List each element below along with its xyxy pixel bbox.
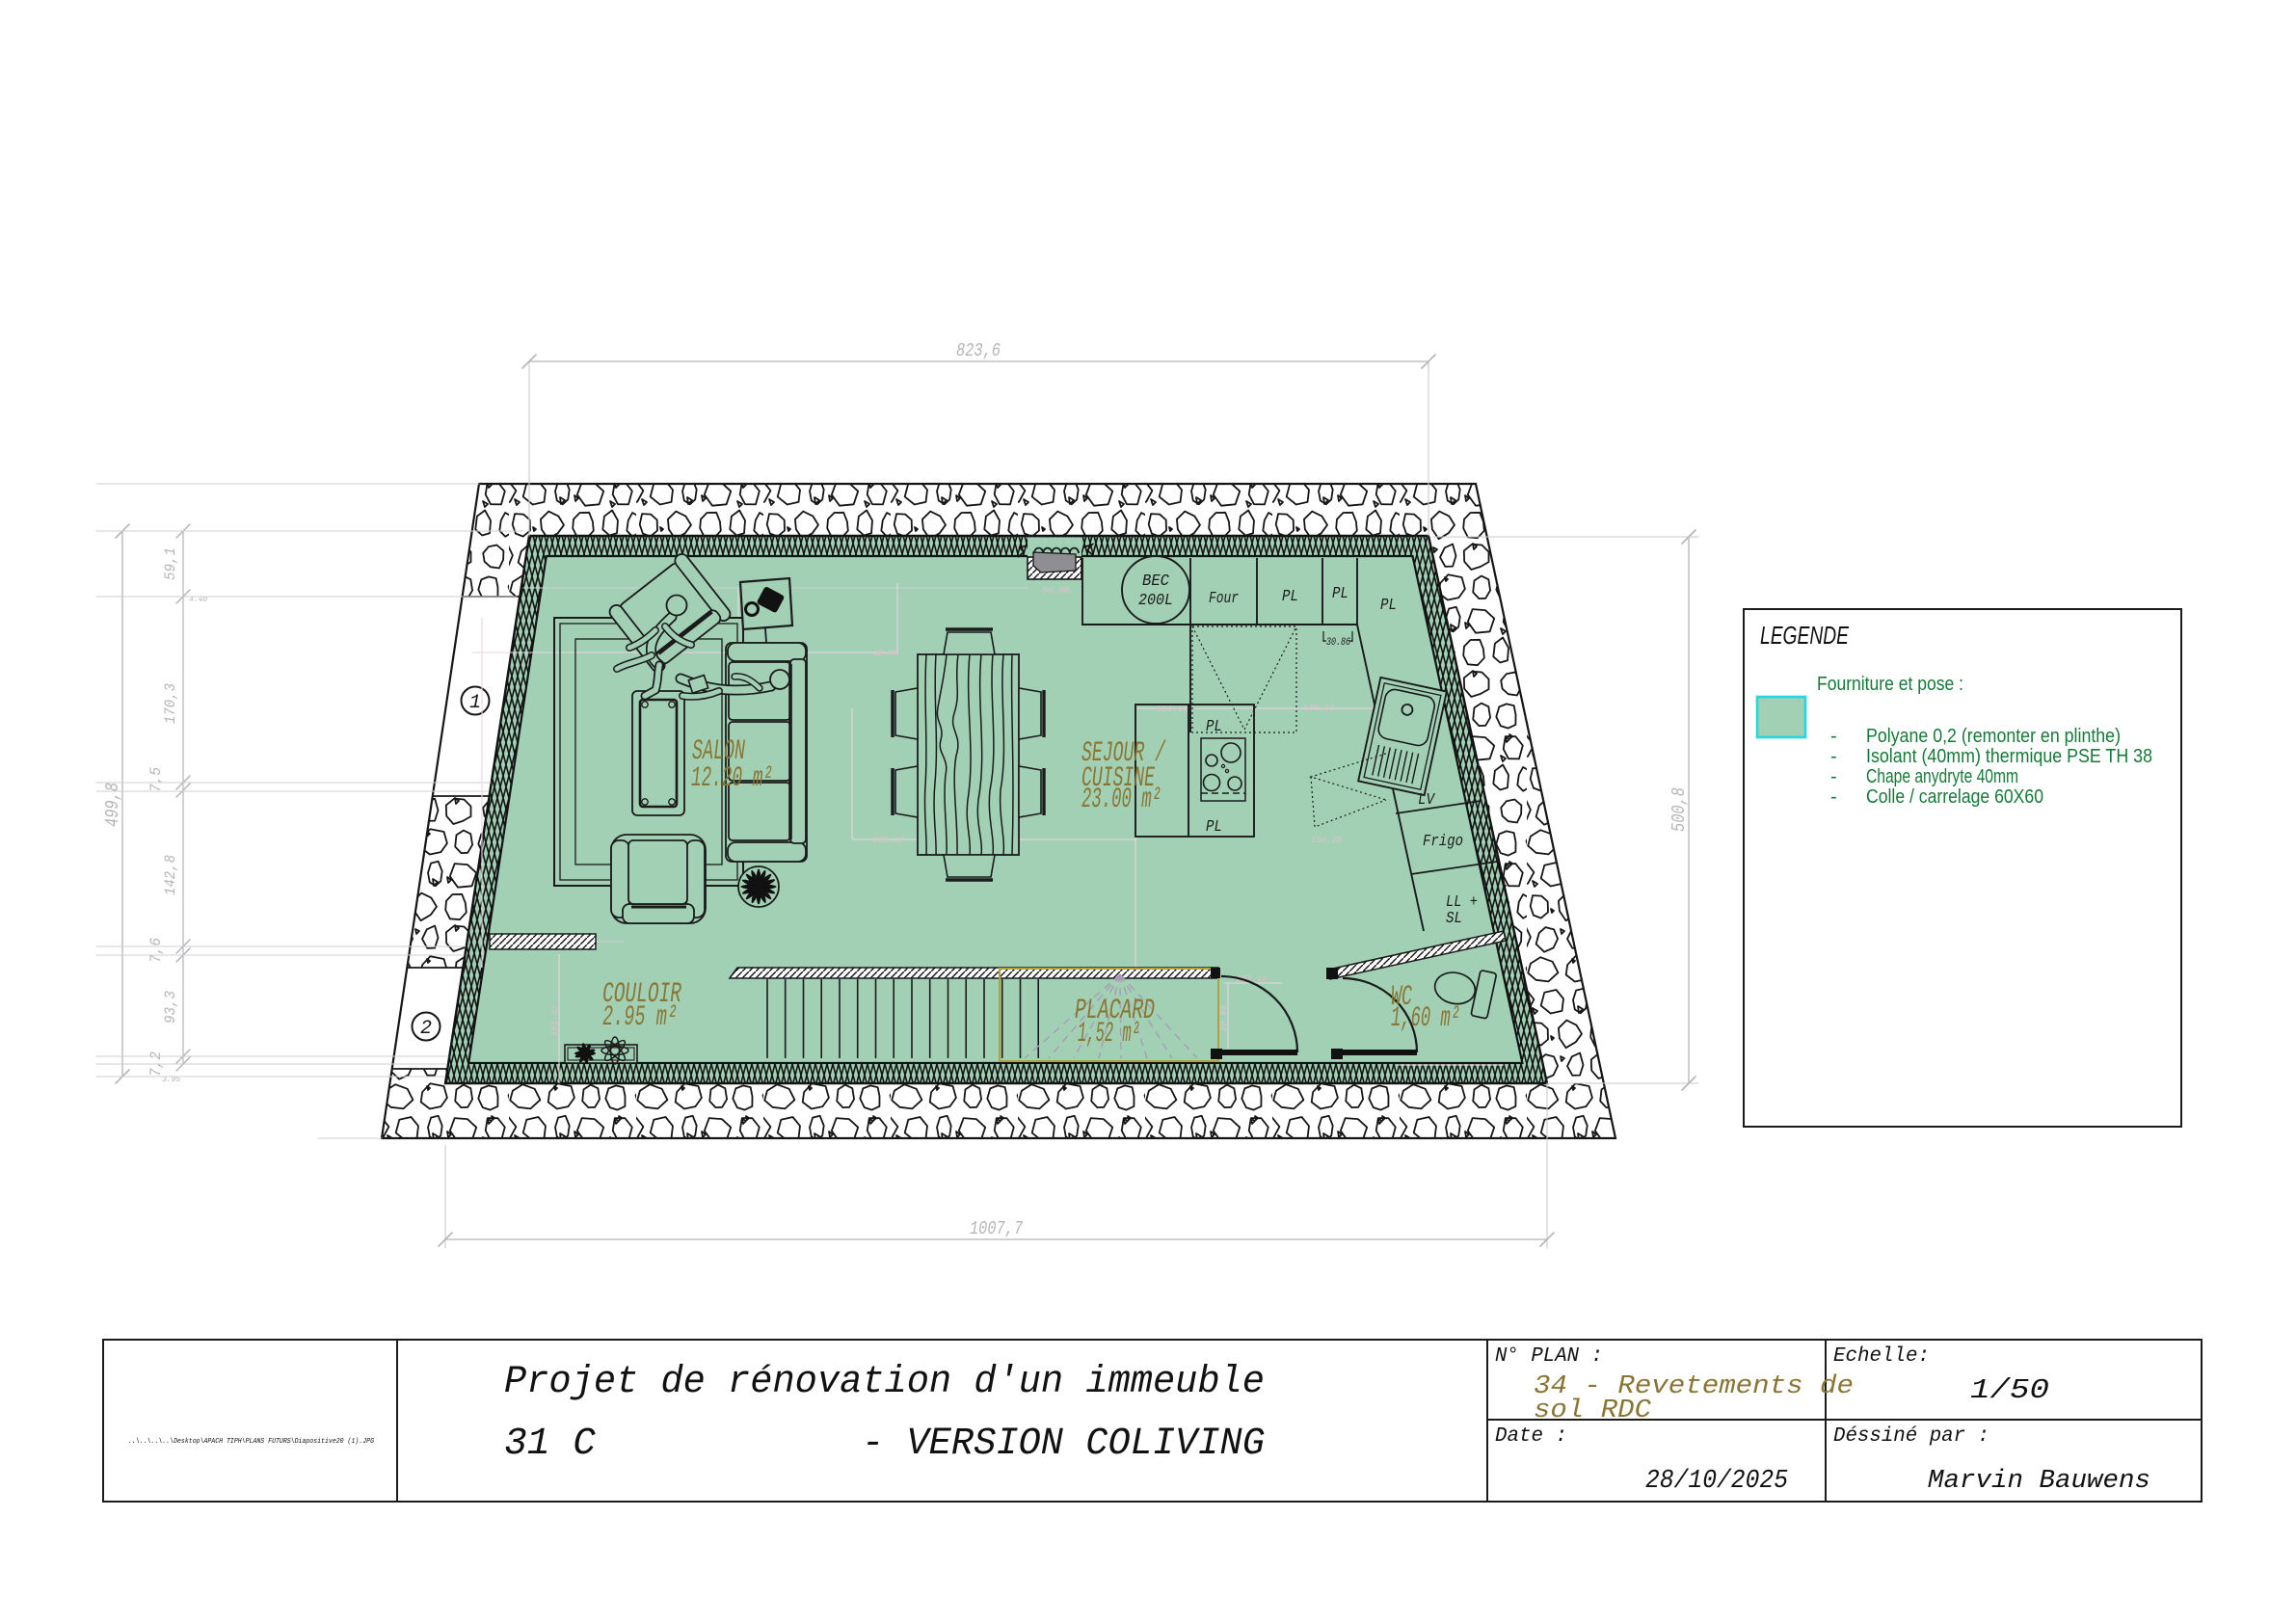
svg-text:12.20 m²: 12.20 m²	[691, 762, 773, 795]
svg-text:LV: LV	[1418, 791, 1435, 810]
svg-text:sol RDC: sol RDC	[1534, 1397, 1651, 1425]
svg-text:28/10/2025: 28/10/2025	[1645, 1467, 1788, 1496]
svg-text:Four: Four	[1209, 590, 1239, 608]
svg-text:Isolant (40mm) thermique PSE: Isolant (40mm) thermique PSE TH 38	[1866, 746, 2152, 767]
svg-text:109.10: 109.10	[1303, 704, 1335, 713]
svg-text:1,60 m²: 1,60 m²	[1391, 1002, 1460, 1035]
svg-text:PL: PL	[1206, 818, 1222, 837]
svg-text:170,3: 170,3	[162, 683, 179, 724]
svg-text:PL: PL	[1282, 588, 1298, 606]
svg-text:50.00: 50.00	[1043, 586, 1070, 596]
svg-text:PL: PL	[1332, 585, 1348, 603]
svg-text:2: 2	[420, 1018, 432, 1040]
svg-text:PL: PL	[1380, 597, 1397, 615]
svg-text:-: -	[1830, 726, 1837, 747]
svg-text:142,8: 142,8	[162, 855, 179, 895]
svg-text:23.00 m²: 23.00 m²	[1081, 784, 1161, 816]
svg-text:-: -	[1830, 746, 1837, 767]
svg-text:Déssiné par :: Déssiné par :	[1833, 1425, 1989, 1448]
svg-text:Date :: Date :	[1495, 1425, 1567, 1448]
svg-text:7,6: 7,6	[147, 938, 165, 963]
svg-text:48.86: 48.86	[872, 649, 899, 658]
svg-text:1,52 m²: 1,52 m²	[1078, 1018, 1140, 1051]
svg-text:499,8: 499,8	[102, 783, 123, 827]
svg-text:Fourniture et pose :: Fourniture et pose :	[1817, 674, 1963, 695]
svg-text:BEC: BEC	[1142, 572, 1170, 591]
svg-text:1/50: 1/50	[1970, 1374, 2049, 1406]
svg-text:59,1: 59,1	[162, 547, 179, 580]
svg-text:500,8: 500,8	[1669, 787, 1690, 832]
svg-text:Marvin Bauwens: Marvin Bauwens	[1928, 1467, 2150, 1496]
svg-text:Chape anydryte 40mm: Chape anydryte 40mm	[1866, 766, 2018, 787]
svg-text:-: -	[1830, 766, 1837, 787]
svg-text:N° PLAN :: N° PLAN :	[1495, 1345, 1603, 1368]
svg-text:PL: PL	[1206, 718, 1222, 736]
svg-text:-: -	[1830, 786, 1837, 808]
svg-text:1: 1	[469, 692, 481, 714]
svg-text:164.25: 164.25	[1311, 836, 1343, 845]
svg-text:30.86: 30.86	[1326, 637, 1350, 649]
svg-text:102.47: 102.47	[550, 1004, 560, 1036]
svg-text:200L: 200L	[1138, 592, 1173, 610]
svg-text:Colle / carrelage 60X60: Colle / carrelage 60X60	[1866, 786, 2043, 808]
svg-text:LEGENDE: LEGENDE	[1760, 621, 1849, 650]
svg-text:Polyane 0,2 (remonter en plint: Polyane 0,2 (remonter en plinthe)	[1866, 726, 2121, 747]
svg-text:..\..\..\..\Desktop\APACH TIPH: ..\..\..\..\Desktop\APACH TIPH\PLANS FUT…	[128, 1438, 374, 1446]
svg-text:105.12: 105.12	[872, 836, 904, 845]
svg-text:104.15: 104.15	[1157, 705, 1188, 714]
svg-text:Projet de rénovation d'un imme: Projet de rénovation d'un immeuble	[504, 1361, 1265, 1404]
svg-text:- VERSION COLIVING: - VERSION COLIVING	[862, 1423, 1265, 1466]
svg-text:SL: SL	[1446, 910, 1462, 928]
svg-text:7,5: 7,5	[147, 767, 165, 792]
svg-text:31 C: 31 C	[504, 1423, 596, 1466]
svg-text:1007,7: 1007,7	[970, 1218, 1023, 1239]
svg-text:823,6: 823,6	[956, 340, 1001, 361]
svg-text:2.95 m²: 2.95 m²	[602, 1001, 678, 1034]
svg-text:Echelle:: Echelle:	[1833, 1345, 1930, 1368]
svg-text:88.86: 88.86	[1219, 1004, 1229, 1031]
svg-text:Frigo: Frigo	[1423, 833, 1463, 851]
svg-text:93,3: 93,3	[162, 991, 179, 1024]
